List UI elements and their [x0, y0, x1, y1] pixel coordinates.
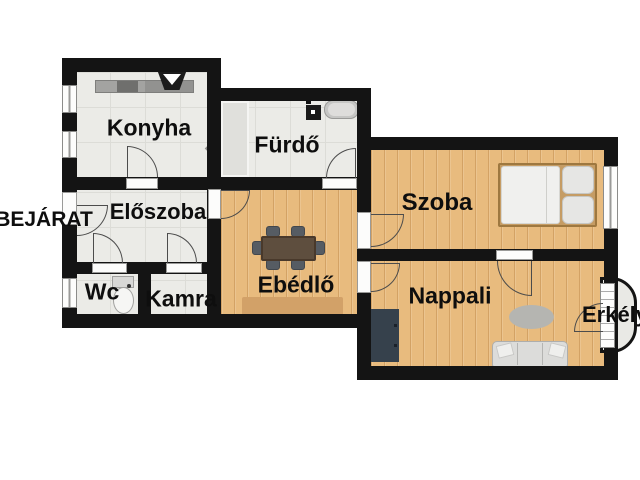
living-rug-oval — [509, 305, 554, 329]
washing-machine-dot — [311, 110, 315, 114]
szoba-window — [603, 166, 618, 229]
konyha-door-threshold — [126, 178, 158, 189]
wall-szoba-nappali — [370, 249, 604, 261]
label-szoba: Szoba — [402, 189, 473, 217]
kamra-door-threshold — [166, 263, 202, 273]
bed-duvet-fold — [546, 167, 547, 223]
bathtub-basin — [328, 103, 355, 116]
label-kamra: Kamra — [145, 286, 217, 313]
toilet-button — [127, 284, 131, 288]
wc-door-threshold — [92, 263, 127, 273]
label-bejarat: BEJÁRAT — [0, 208, 93, 232]
kitchen-sink — [117, 81, 138, 92]
konyha-window — [62, 131, 77, 158]
wall-nappali-bottom — [357, 366, 618, 380]
label-konyha: Konyha — [107, 115, 191, 142]
dining-table-icon — [261, 236, 316, 261]
wardrobe-handle — [394, 324, 397, 327]
dining-rug — [242, 297, 343, 315]
szoba-door-threshold — [357, 212, 371, 249]
nappali-floor — [371, 261, 604, 366]
bed-pillow — [562, 166, 594, 194]
bed-mattress — [501, 166, 560, 224]
sofa-cushion-divider — [542, 343, 543, 365]
nappali-door-threshold — [357, 261, 371, 293]
shower-area — [221, 101, 249, 177]
wardrobe-icon — [371, 309, 399, 362]
label-eloszoba: Előszoba — [110, 199, 207, 225]
floor-plan: BEJÁRAT Konyha Fürdő Előszoba Wc Kamra E… — [0, 0, 640, 480]
wall-szoba-top — [357, 137, 618, 150]
label-furdo: Fürdő — [254, 132, 319, 159]
sofa-cushion-divider — [517, 343, 518, 365]
wardrobe-handle — [394, 344, 397, 347]
stove-hood-vent-icon — [163, 74, 181, 85]
wall-furdo-top — [207, 88, 370, 101]
label-erkely: Erkély — [582, 302, 640, 328]
label-nappali: Nappali — [408, 283, 491, 310]
furdo-door-threshold — [322, 178, 357, 189]
szoba-nappali-threshold — [496, 250, 533, 260]
wall-konyha-top — [62, 58, 220, 72]
konyha-window — [62, 85, 77, 113]
label-ebedlo: Ebédlő — [258, 272, 335, 299]
eloszoba-ebedlo-threshold — [208, 189, 221, 219]
bed-pillow — [562, 196, 594, 224]
wc-window — [62, 278, 77, 308]
label-wc: Wc — [85, 279, 120, 306]
